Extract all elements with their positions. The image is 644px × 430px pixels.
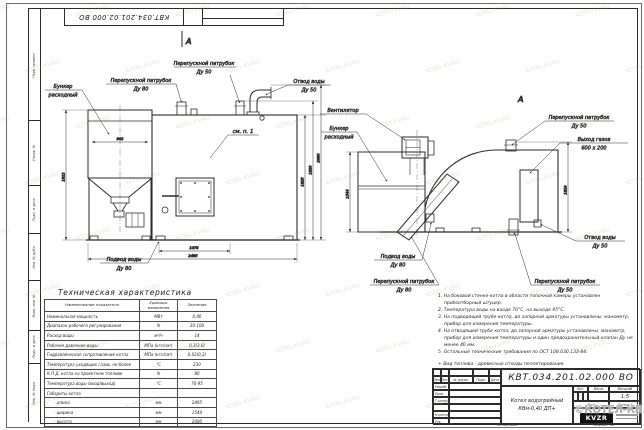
dim-h1: 1825 — [301, 177, 305, 187]
note-1: 1. На боковой стенке котла в области топ… — [438, 294, 636, 308]
tb-role-utv: Утв. — [433, 418, 449, 425]
spec-cell: Температура уходящих газов, не более — [45, 359, 140, 369]
spec-cell: 0,3(3,0) — [178, 340, 217, 350]
side-view: А — [320, 95, 628, 294]
spec-cell: мм — [140, 398, 178, 408]
org-text-bar — [616, 418, 638, 420]
tb-cell — [489, 369, 501, 376]
side-view-mark: А — [517, 95, 523, 104]
label-bypass50-bottom-line1: Перепускной патрубок — [535, 279, 596, 285]
dim-h2: 1920 — [309, 165, 313, 175]
label-side-bypass80-line2: Ду 80 — [396, 288, 412, 294]
tb-cell — [588, 392, 609, 401]
spec-row: - длинамм2495 — [45, 398, 217, 408]
label-bypass50-top-line2: Ду 50 — [571, 124, 587, 130]
spec-cell: °С — [140, 379, 178, 389]
dim-side-left: 1544 — [346, 189, 350, 199]
tb-cell — [449, 404, 501, 411]
spec-cell: - длина — [45, 398, 140, 408]
tb-name-line2: КВм-0,40 ДП+ — [518, 406, 555, 414]
spec-cell: МПа (кгс/см²) — [140, 350, 178, 360]
label-bypass50-line2: Ду 50 — [196, 70, 212, 76]
note-3: 3. На подводящей трубе котла, до запорно… — [438, 315, 636, 329]
dim-w2: 2495 — [188, 254, 198, 258]
spec-row: - ширинамм1544 — [45, 407, 217, 417]
spec-cell: Гидравлическое сопротивление котла — [45, 350, 140, 360]
spec-cell — [140, 388, 178, 398]
label-side-water-in-line2: Ду 80 — [390, 263, 406, 269]
spec-cell: МВт — [140, 312, 178, 322]
spec-cell: Расход воды — [45, 331, 140, 341]
label-side-water-in-line1: Подвод воды — [381, 254, 416, 260]
tb-cell — [449, 397, 501, 404]
spec-cell: 230 — [178, 359, 217, 369]
spec-cell: 1544 — [178, 407, 217, 417]
label-side-bunker-line1: Бункер — [330, 126, 349, 132]
tb-col-data: Дата — [489, 376, 501, 383]
spec-cell: 0,40 — [178, 312, 217, 322]
label-bypass80-line2: Ду 80 — [133, 87, 149, 93]
door-bolts — [180, 182, 210, 212]
label-bunker-line2: расходный — [48, 93, 79, 99]
spec-header-row: Наименование показателя Единицы измерени… — [45, 300, 217, 312]
label-bypass50-line1: Перепускной патрубок — [174, 61, 235, 67]
label-side-water-out-line1: Отвод воды — [584, 235, 615, 241]
side-labels: Вентилятор Бункер расходный Перепускной … — [320, 108, 628, 294]
tb-cell — [473, 369, 489, 376]
spec-table: Наименование показателя Единицы измерени… — [44, 299, 217, 427]
spec-table-block: Техническая характеристика Наименование … — [44, 288, 216, 427]
copied-label: Копировал — [497, 423, 518, 427]
spec-cell: К.П.Д. котла на проектном топливе — [45, 369, 140, 379]
spec-cell: % — [140, 321, 178, 331]
tb-col-podp: Подп. — [473, 376, 489, 383]
tb-scale-value: 1:5 — [609, 392, 641, 401]
label-water-in-line1: Подвод воды — [107, 257, 142, 263]
tb-col-list: Лист — [441, 376, 449, 383]
dim-w1: 1078 — [189, 246, 199, 250]
spec-cell: °С — [140, 359, 178, 369]
dim-side-right: 1818 — [564, 185, 568, 195]
spec-cell: - ширина — [45, 407, 140, 417]
note-4: 4. На отводящей трубе котла, до запорной… — [438, 329, 636, 349]
spec-cell: мм — [140, 417, 178, 427]
label-bypass50-bottom-line2: Ду 50 — [557, 288, 573, 294]
label-water-in-line2: Ду 80 — [116, 266, 132, 272]
tb-cell — [449, 390, 501, 397]
spec-cell: 2495 — [178, 398, 217, 408]
tb-cell — [449, 369, 473, 376]
spec-cell: МПа (кгс/см²) — [140, 340, 178, 350]
spec-row: Номинальная мощностьМВт0,40 — [45, 312, 217, 322]
spec-cell: % — [140, 369, 178, 379]
spec-cell: 70-95 — [178, 379, 217, 389]
label-bunker-line1: Бункер — [54, 84, 73, 90]
label-side-water-out-line2: Ду 50 — [592, 244, 608, 250]
front-view: А 902 — [45, 31, 331, 272]
spec-cell: 30-100 — [178, 321, 217, 331]
spec-header-value: Значение — [178, 300, 217, 312]
spec-row: Диапазон рабочего регулирования%30-100 — [45, 321, 217, 331]
front-section-mark: А — [185, 37, 191, 46]
tb-cell — [449, 418, 501, 425]
label-bypass50-top-line1: Перепускной патрубок — [549, 115, 610, 121]
label-side-bypass80-line1: Перепускной патрубок — [374, 279, 435, 285]
spec-row: Температура уходящих газов, не более°С23… — [45, 359, 217, 369]
spec-cell: 80 — [178, 369, 217, 379]
tb-product-name: Котел водогрейный КВм-0,40 ДП+ — [501, 386, 573, 425]
label-gas-out-line2: 600 х 200 — [581, 146, 606, 152]
spec-row: Рабочее давление водыМПа (кгс/см²)0,3(3,… — [45, 340, 217, 350]
spec-cell: - высота — [45, 417, 140, 427]
label-see-note: см. п. 1 — [233, 129, 254, 135]
spec-cell: Габариты котла — [45, 388, 140, 398]
label-gas-out-line1: Выход газов — [578, 137, 611, 143]
spec-row: Габариты котла — [45, 388, 217, 398]
tb-cell — [449, 383, 501, 390]
dim-h3: 2080 — [317, 153, 321, 163]
spec-table-title: Техническая характеристика — [58, 288, 216, 297]
technical-notes: 1. На боковой стенке котла в области топ… — [438, 294, 636, 369]
spec-row: - высотамм2080 — [45, 417, 217, 427]
spec-cell: м³/ч — [140, 331, 178, 341]
drawing-sheet: KOTEL-KV.RUKOTEL-KV.RUKOTEL-KV.RUKOTEL-K… — [0, 0, 644, 430]
note-2: 2. Температура воды на входе 70°С, на вы… — [438, 308, 636, 315]
format-label: Формат А3 — [594, 423, 614, 427]
spec-row: К.П.Д. котла на проектном топливе%80 — [45, 369, 217, 379]
tb-role-tkontr: Т.контр. — [433, 397, 449, 404]
dim-bunker-width: 902 — [117, 137, 125, 141]
tb-cell — [441, 369, 449, 376]
label-side-bunker-line2: расходный — [324, 135, 355, 141]
spec-cell: Рабочее давление воды — [45, 340, 140, 350]
copyright-watermark: ©КОТЕЛ-КВ.РФ2021 — [574, 404, 644, 416]
spec-cell: Номинальная мощность — [45, 312, 140, 322]
spec-cell: мм — [140, 407, 178, 417]
tb-role-razrab: Разраб. — [433, 383, 449, 390]
tb-role-nkontr: Н.контр. — [433, 411, 449, 418]
tb-cell — [433, 369, 441, 376]
spec-row: Расход водым³/ч14 — [45, 331, 217, 341]
spec-row: Температура воды (вход/выход)°С70-95 — [45, 379, 217, 389]
label-fan: Вентилятор — [327, 108, 358, 114]
note-5: 5. Остальные технические требования по О… — [438, 350, 636, 357]
spec-header-name: Наименование показателя — [45, 300, 140, 312]
tb-cell — [449, 411, 501, 418]
spec-row: Гидравлическое сопротивление котлаМПа (к… — [45, 350, 217, 360]
tb-col-doc: № докум. — [449, 376, 473, 383]
spec-cell: Диапазон рабочего регулирования — [45, 321, 140, 331]
spec-cell: Температура воды (вход/выход) — [45, 379, 140, 389]
tb-role-blank — [433, 404, 449, 411]
label-bypass80-line1: Перепускной патрубок — [111, 78, 172, 84]
dim-left-height: 1912 — [62, 172, 66, 182]
tb-name-line1: Котел водогрейный — [511, 398, 564, 406]
spec-cell: 0,02(0,2) — [178, 350, 217, 360]
label-water-out-line1: Отвод воды — [293, 79, 324, 85]
tb-role-prov: Пров. — [433, 390, 449, 397]
tb-doc-number: КВТ.034.201.02.000 ВО — [501, 369, 641, 386]
spec-cell — [178, 388, 217, 398]
spec-cell: 14 — [178, 331, 217, 341]
tb-col-izm: Изм. — [433, 376, 441, 383]
spec-cell: 2080 — [178, 417, 217, 427]
label-water-out-line2: Ду 50 — [301, 88, 317, 94]
spec-header-units: Единицы измерения — [140, 300, 178, 312]
